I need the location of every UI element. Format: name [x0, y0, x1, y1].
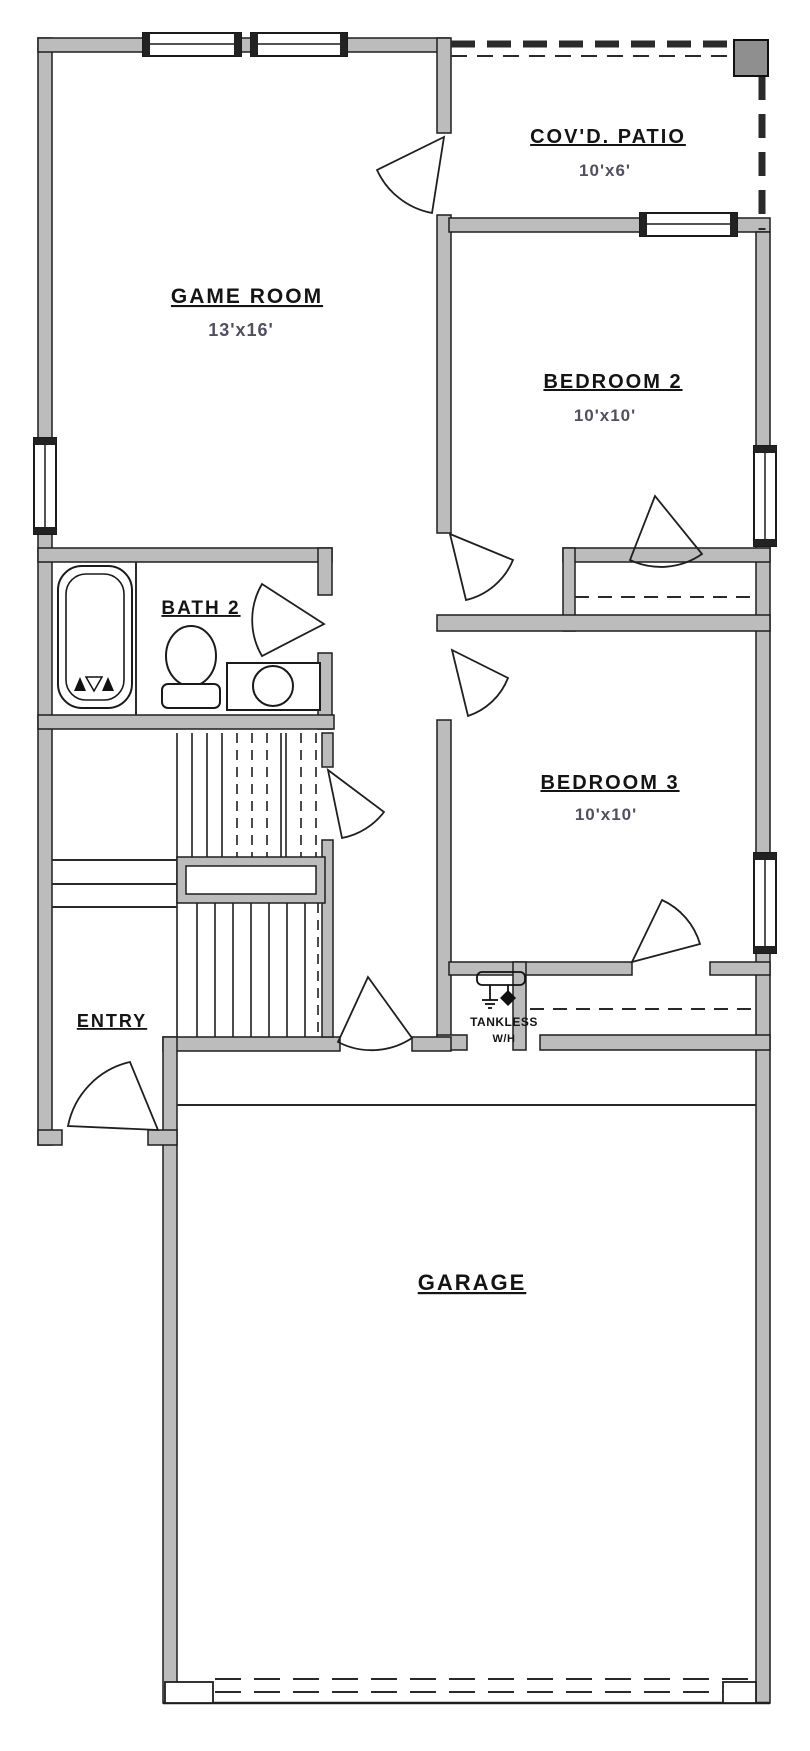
wall-bath-south — [38, 715, 334, 729]
toilet-bowl — [166, 626, 216, 686]
wall-entry-south-b — [148, 1130, 177, 1145]
wall-entry-south-a — [38, 1130, 62, 1145]
door-bedroom2 — [450, 534, 513, 600]
wall-bath-right-stub-a — [318, 548, 332, 595]
window-bedroom2-right — [754, 446, 776, 546]
bedroom2-label: BEDROOM 2 — [543, 371, 682, 393]
wall-exterior-top — [38, 38, 449, 52]
bedroom3-dims: 10'x10' — [575, 805, 637, 824]
wall-exterior-left — [38, 38, 52, 1145]
wall-center-bed2-left — [437, 215, 451, 533]
floor-plan: GAME ROOM 13'x16' COV'D. PATIO 10'x6' BE… — [0, 0, 810, 1751]
staircase — [52, 733, 325, 1037]
wall-garage-top-left — [163, 1037, 340, 1051]
wall-stair-right-stub — [322, 733, 333, 767]
window-gameroom-left — [34, 438, 56, 534]
window-bedroom3-right — [754, 853, 776, 953]
bath2-label: BATH 2 — [161, 598, 240, 619]
game-room-dims: 13'x16' — [208, 320, 274, 340]
covd-patio-dims: 10'x6' — [579, 161, 631, 180]
wall-gameroom-patio-a — [437, 38, 451, 133]
garage-details — [163, 1105, 770, 1703]
door-bedroom3 — [452, 650, 508, 716]
floor-plan-svg: GAME ROOM 13'x16' COV'D. PATIO 10'x6' BE… — [0, 0, 810, 1751]
garage-door-jamb-right — [723, 1682, 756, 1703]
door-gameroom-patio — [377, 137, 444, 213]
tankless-label: TANKLESS — [470, 1015, 538, 1029]
door-hall-stairs — [328, 770, 384, 838]
garage-door-jamb-left — [165, 1682, 213, 1703]
doors — [68, 137, 702, 1130]
wall-bed2-bed3-divider — [437, 615, 770, 631]
wall-bedroom2-south — [563, 548, 770, 562]
patio-post — [734, 40, 768, 76]
door-bedroom3-closet — [632, 900, 700, 962]
window-gameroom-top-1 — [143, 33, 241, 56]
wall-bedroom3-left — [437, 720, 451, 1037]
closet-rods — [530, 597, 756, 1009]
window-gameroom-top-2 — [251, 33, 347, 56]
door-bath2 — [252, 584, 324, 656]
vanity-sink — [253, 666, 293, 706]
game-room-label: GAME ROOM — [171, 285, 323, 308]
windows — [34, 33, 776, 953]
wall-gameroom-bath — [38, 548, 332, 562]
door-garage-hall — [338, 977, 412, 1050]
bedroom2-dims: 10'x10' — [574, 406, 636, 425]
door-entry-front — [68, 1062, 158, 1130]
wall-bedroom3-south-b — [710, 962, 770, 975]
wall-bedroom3-south-a — [449, 962, 632, 975]
walls — [38, 38, 770, 1703]
entry-label: ENTRY — [77, 1011, 147, 1031]
window-bedroom2-patio — [640, 213, 737, 236]
wall-closet3-south — [540, 1035, 770, 1050]
bedroom3-label: BEDROOM 3 — [540, 772, 679, 794]
wall-garage-top-mid — [412, 1037, 451, 1051]
tankless-wh-label: W/H — [493, 1033, 516, 1045]
toilet-tank — [162, 684, 220, 708]
stair-rail-inner — [186, 866, 316, 894]
covd-patio-label: COV'D. PATIO — [530, 126, 686, 148]
garage-label: GARAGE — [418, 1270, 527, 1295]
bath2-fixtures — [58, 562, 320, 715]
